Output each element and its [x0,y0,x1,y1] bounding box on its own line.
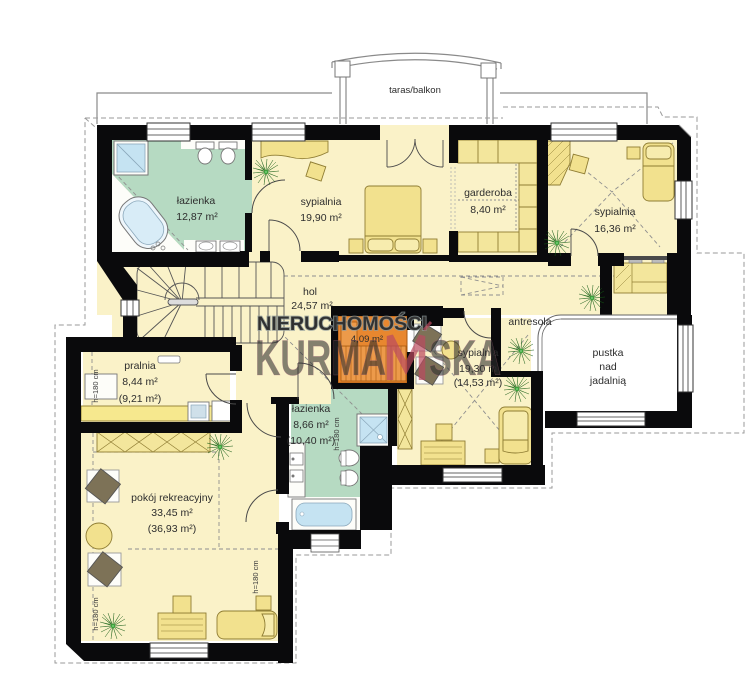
svg-text:pokój rekreacyjny: pokój rekreacyjny [131,492,213,504]
svg-text:pralnia: pralnia [124,360,156,372]
svg-text:(36,93 m²): (36,93 m²) [148,523,196,535]
svg-text:pustka: pustka [593,347,624,359]
svg-text:8,40 m²: 8,40 m² [470,204,506,216]
svg-text:antresola: antresola [508,316,551,328]
svg-text:33,45 m²: 33,45 m² [151,507,193,519]
svg-text:SKA: SKA [429,330,501,386]
svg-text:h=180 cm: h=180 cm [251,560,260,593]
svg-text:hol: hol [303,286,317,298]
svg-text:12,87 m²: 12,87 m² [176,211,218,223]
svg-text:h=180 cm: h=180 cm [91,369,100,402]
svg-text:(10,40 m²): (10,40 m²) [287,435,335,447]
svg-text:łazienka: łazienka [292,403,331,415]
svg-text:16,36 m²: 16,36 m² [594,223,636,235]
svg-text:24,57 m²: 24,57 m² [291,300,333,312]
svg-text:h=180 cm: h=180 cm [332,417,341,450]
svg-text:(9,21 m²): (9,21 m²) [119,393,162,405]
svg-text:8,66 m²: 8,66 m² [293,419,329,431]
svg-text:sypialnia: sypialnia [595,206,636,218]
svg-text:łazienka: łazienka [177,195,216,207]
svg-text:KURMA: KURMA [255,330,386,386]
svg-text:sypialnia: sypialnia [301,196,342,208]
svg-text:8,44 m²: 8,44 m² [122,376,158,388]
svg-text:garderoba: garderoba [464,187,512,199]
svg-text:nad: nad [599,361,617,373]
svg-text:19,90 m²: 19,90 m² [300,212,342,224]
svg-text:jadalnią: jadalnią [589,375,626,387]
svg-text:h=180 cm: h=180 cm [91,597,100,630]
svg-text:taras/balkon: taras/balkon [389,85,441,96]
